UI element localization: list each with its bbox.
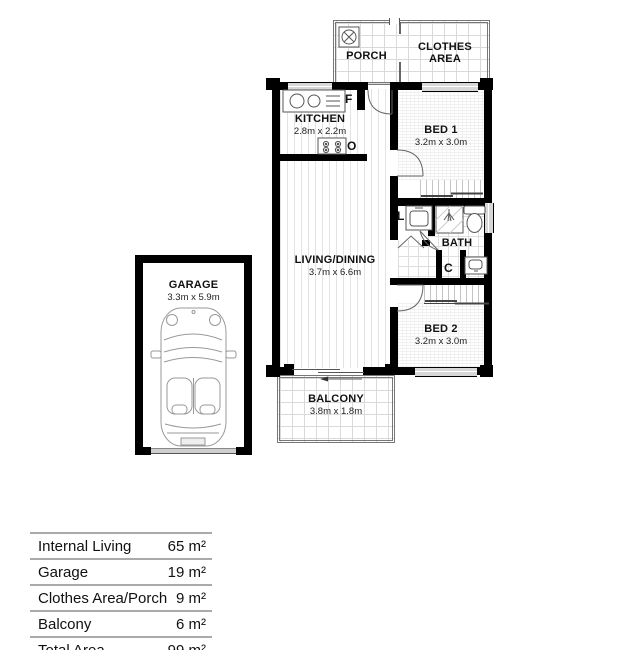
- kitchen-sink-icon: [283, 90, 345, 112]
- row-label: Clothes Area/Porch: [38, 590, 167, 607]
- shower-icon: [436, 206, 463, 233]
- living-dining-dims: 3.7m x 6.6m: [280, 267, 390, 278]
- bed2-robe-tracks: [425, 301, 489, 304]
- floor-plan-page: PORCH CLOTHES AREA KITCHEN 2.8m x 2.2m F…: [0, 0, 619, 650]
- laundry-bifold-door: [398, 236, 424, 248]
- table-row: Garage 19 m²: [30, 558, 212, 584]
- cooktop-icon: [318, 138, 346, 154]
- table-row: Clothes Area/Porch 9 m²: [30, 584, 212, 610]
- table-row: Balcony 6 m²: [30, 610, 212, 636]
- table-row: Total Area 99 m²: [30, 636, 212, 650]
- row-label: Balcony: [38, 616, 91, 633]
- row-value: 6 m²: [176, 616, 206, 633]
- cupboard-label: C: [444, 261, 453, 275]
- balcony-sliding-door: [292, 370, 364, 382]
- bed2-label: BED 2: [398, 323, 484, 335]
- clothes-area-label: CLOTHES AREA: [402, 41, 488, 65]
- kitchen-dims: 2.8m x 2.2m: [282, 126, 358, 137]
- balcony-dims: 3.8m x 1.8m: [277, 406, 395, 417]
- laundry-label: L: [397, 209, 404, 223]
- bed1-door-swing: [397, 150, 423, 176]
- oven-label: O: [347, 139, 356, 153]
- garage-label: GARAGE: [143, 279, 244, 291]
- bed2-door-swing: [397, 285, 423, 311]
- row-value: 9 m²: [176, 590, 206, 607]
- toilet-icon: [464, 206, 485, 233]
- row-value: 19 m²: [168, 564, 206, 581]
- row-value: 99 m²: [168, 642, 206, 650]
- porch-light-icon: [339, 27, 359, 47]
- bed1-dims: 3.2m x 3.0m: [398, 137, 484, 148]
- laundry-trough-icon: [406, 206, 432, 230]
- porch-label: PORCH: [333, 50, 400, 62]
- row-label: Internal Living: [38, 538, 131, 555]
- garage-dims: 3.3m x 5.9m: [143, 292, 244, 303]
- kitchen-label: KITCHEN: [282, 113, 358, 125]
- vanity-icon: [465, 257, 487, 274]
- bed1-label: BED 1: [398, 124, 484, 136]
- table-row: Internal Living 65 m²: [30, 532, 212, 558]
- entry-door-swing: [368, 90, 392, 114]
- balcony-label: BALCONY: [277, 393, 395, 405]
- row-value: 65 m²: [168, 538, 206, 555]
- living-dining-label: LIVING/DINING: [280, 254, 390, 266]
- bath-label: BATH: [428, 237, 486, 249]
- row-label: Total Area: [38, 642, 105, 650]
- row-label: Garage: [38, 564, 88, 581]
- car-icon: [151, 308, 236, 446]
- area-table: Internal Living 65 m² Garage 19 m² Cloth…: [30, 532, 212, 650]
- bed2-dims: 3.2m x 3.0m: [398, 336, 484, 347]
- fridge-label: F: [345, 92, 352, 106]
- bed1-robe-tracks: [421, 194, 483, 197]
